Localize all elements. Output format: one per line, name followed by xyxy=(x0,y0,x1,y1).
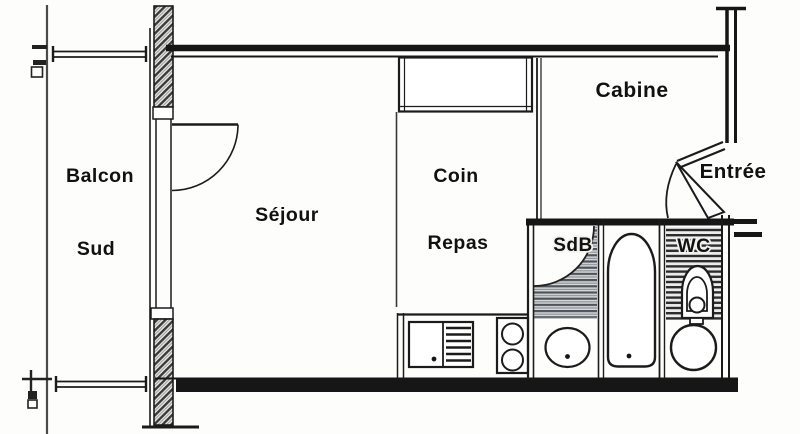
bathroom-label: SdB xyxy=(553,235,593,256)
wall-junction-box-top xyxy=(153,107,173,119)
washbasin xyxy=(546,328,590,367)
wall-hatch-top xyxy=(154,6,173,107)
closet xyxy=(399,58,532,112)
living-room-label: Séjour xyxy=(255,204,319,226)
kitchen-sink xyxy=(409,322,473,367)
dining-label-line1: Coin xyxy=(433,165,478,187)
cabin-label: Cabine xyxy=(595,79,668,102)
south-wall xyxy=(155,379,738,393)
toilet xyxy=(682,266,713,324)
balcony-label-line2: Sud xyxy=(77,238,115,260)
dining-label-line2: Repas xyxy=(427,232,488,254)
floor-plan: Balcon Sud Séjour Coin Repas Cabine Entr… xyxy=(0,0,800,434)
wall-junction-box-bottom xyxy=(151,308,173,319)
floor-plan-page: Balcon Sud Séjour Coin Repas Cabine Entr… xyxy=(0,0,800,434)
cooktop xyxy=(497,318,528,373)
wall-hatch-bottom xyxy=(154,319,173,425)
entrance-label: Entrée xyxy=(700,160,767,183)
wc-washbasin xyxy=(671,325,716,370)
bathtub xyxy=(608,234,655,367)
balcony-label-line1: Balcon xyxy=(66,165,134,187)
wc-label: WC xyxy=(677,235,711,257)
